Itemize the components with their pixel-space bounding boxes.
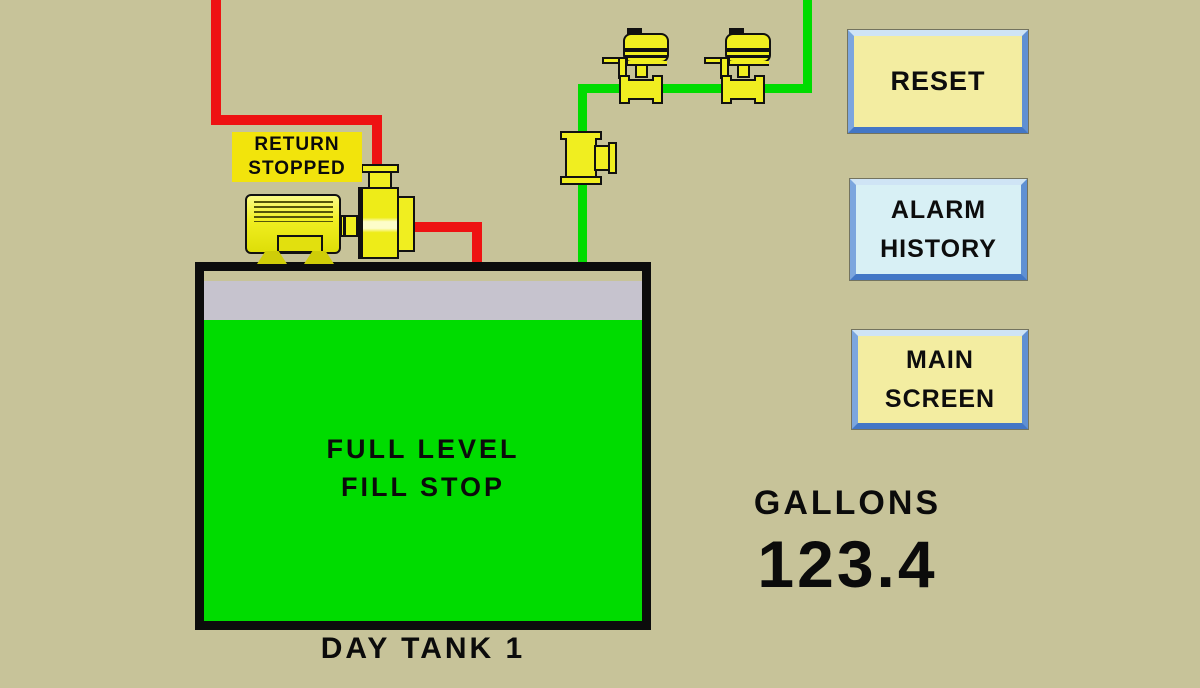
supply-valve-2 xyxy=(704,28,780,105)
return-pipe-vertical-left xyxy=(211,0,221,125)
pump-motor-junction-box xyxy=(277,235,323,253)
valve-stem xyxy=(737,64,750,78)
tank-headspace-band xyxy=(204,281,642,320)
reset-button[interactable]: RESET xyxy=(848,30,1028,133)
pump-casing xyxy=(358,187,399,259)
tank-status-text: FULL LEVEL FILL STOP xyxy=(204,430,642,506)
return-status-label: RETURN STOPPED xyxy=(232,132,362,182)
return-status-line1: RETURN xyxy=(232,133,362,157)
pump-motor-fins xyxy=(254,201,333,222)
day-tank-1: FULL LEVEL FILL STOP xyxy=(195,262,651,630)
reset-button-label: RESET xyxy=(890,66,985,97)
return-pipe-drop-to-pump xyxy=(372,115,382,171)
main-screen-line2: SCREEN xyxy=(885,380,995,419)
gallons-value: 123.4 xyxy=(705,526,990,602)
tank-status-line1: FULL LEVEL xyxy=(204,430,642,468)
valve-stem xyxy=(635,64,648,78)
tee-branch-flange xyxy=(608,142,617,174)
return-pipe-horizontal-top xyxy=(211,115,382,125)
supply-valve-1 xyxy=(602,28,678,105)
hmi-day-tank-screen: FULL LEVEL FILL STOP DAY TANK 1 RETURN S… xyxy=(0,0,1200,688)
valve-body xyxy=(628,79,654,100)
tank-status-line2: FILL STOP xyxy=(204,468,642,506)
tank-liquid-fill: FULL LEVEL FILL STOP xyxy=(204,320,642,621)
pump-discharge-head xyxy=(397,196,415,252)
tee-body xyxy=(565,138,597,178)
supply-tee-fitting xyxy=(558,131,620,185)
gallons-label: GALLONS xyxy=(720,484,975,523)
alarm-history-button[interactable]: ALARM HISTORY xyxy=(850,179,1027,280)
main-screen-line1: MAIN xyxy=(906,341,974,380)
valve-actuator xyxy=(725,33,771,63)
main-screen-button[interactable]: MAIN SCREEN xyxy=(852,330,1028,429)
alarm-history-line1: ALARM xyxy=(891,191,986,230)
tank-name-label: DAY TANK 1 xyxy=(195,632,651,666)
tee-flange-bottom xyxy=(560,176,602,185)
valve-body xyxy=(730,79,756,100)
supply-pipe-vertical-right xyxy=(803,0,812,93)
valve-actuator xyxy=(623,33,669,63)
alarm-history-line2: HISTORY xyxy=(880,230,997,269)
return-status-line2: STOPPED xyxy=(232,157,362,181)
